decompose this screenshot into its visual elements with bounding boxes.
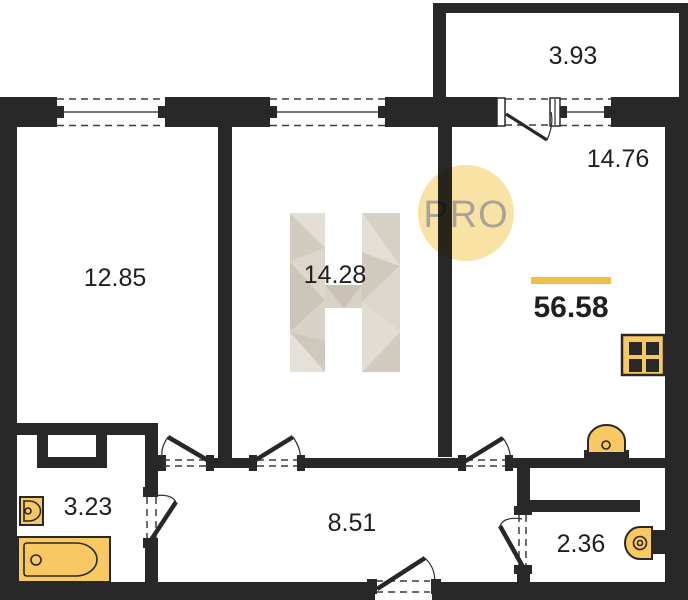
wc-door [500,515,526,567]
room-label-living-kitchen: 14.76 [587,145,650,173]
stove-cell [646,342,659,355]
window-cap [270,106,277,118]
door-leaf [151,502,176,540]
stove-grid-icon [622,335,664,375]
door-frame [497,98,505,126]
window-bedroom [57,99,165,126]
door-opening-dash [163,460,206,466]
window-bedroom2 [270,99,385,126]
stove-cell [629,342,642,355]
stove-cell [629,359,642,372]
window-cap [158,106,165,118]
bathroom-door [147,495,176,540]
entrance-door [376,558,435,592]
total-area-badge: 56.58 [531,277,611,324]
door-opening-dash [257,460,297,466]
room-label-bedroom: 12.85 [84,264,147,292]
bedroom-door [162,437,209,466]
room-label-hallway: 8.51 [328,509,377,537]
living-room-door [464,438,510,466]
bedroom2-door [254,437,300,466]
windows [57,99,611,126]
total-area-value: 56.58 [533,291,608,324]
door-leaf [506,114,547,140]
toilet-bowl [625,527,652,559]
room-label-bedroom2: 14.28 [304,261,367,289]
room-label-bathroom: 3.23 [64,493,113,521]
bathroom-sink-icon [20,497,43,525]
door-leaf [168,437,209,461]
window-cap [57,106,64,118]
door-leaf [377,558,425,589]
door-opening-dash [466,460,505,466]
floor-plan: PRO 56.58 3.93 14.76 12.85 14.28 3.23 8.… [0,0,688,600]
toilet-tank [652,530,666,554]
floor-plan-svg: PRO 56.58 3.93 14.76 12.85 14.28 3.23 8.… [0,0,688,600]
room-label-wc: 2.36 [557,530,606,558]
toilet-icon [625,527,666,559]
window-cap [378,106,385,118]
pro-watermark: PRO [418,165,514,261]
accent-bar [531,277,611,284]
h-watermark [290,213,400,372]
window-cap [604,106,611,118]
door-leaf [464,438,503,462]
bathtub-icon [18,537,110,582]
balcony-door [497,98,560,140]
window-cap [560,106,567,118]
door-opening-dash [505,99,550,125]
pro-watermark-text: PRO [423,194,508,236]
stove-cell [646,359,659,372]
window-kitchen [560,99,611,126]
room-label-balcony: 3.93 [549,42,598,70]
door-leaf [254,437,293,461]
kitchen-sink-icon [584,425,629,458]
